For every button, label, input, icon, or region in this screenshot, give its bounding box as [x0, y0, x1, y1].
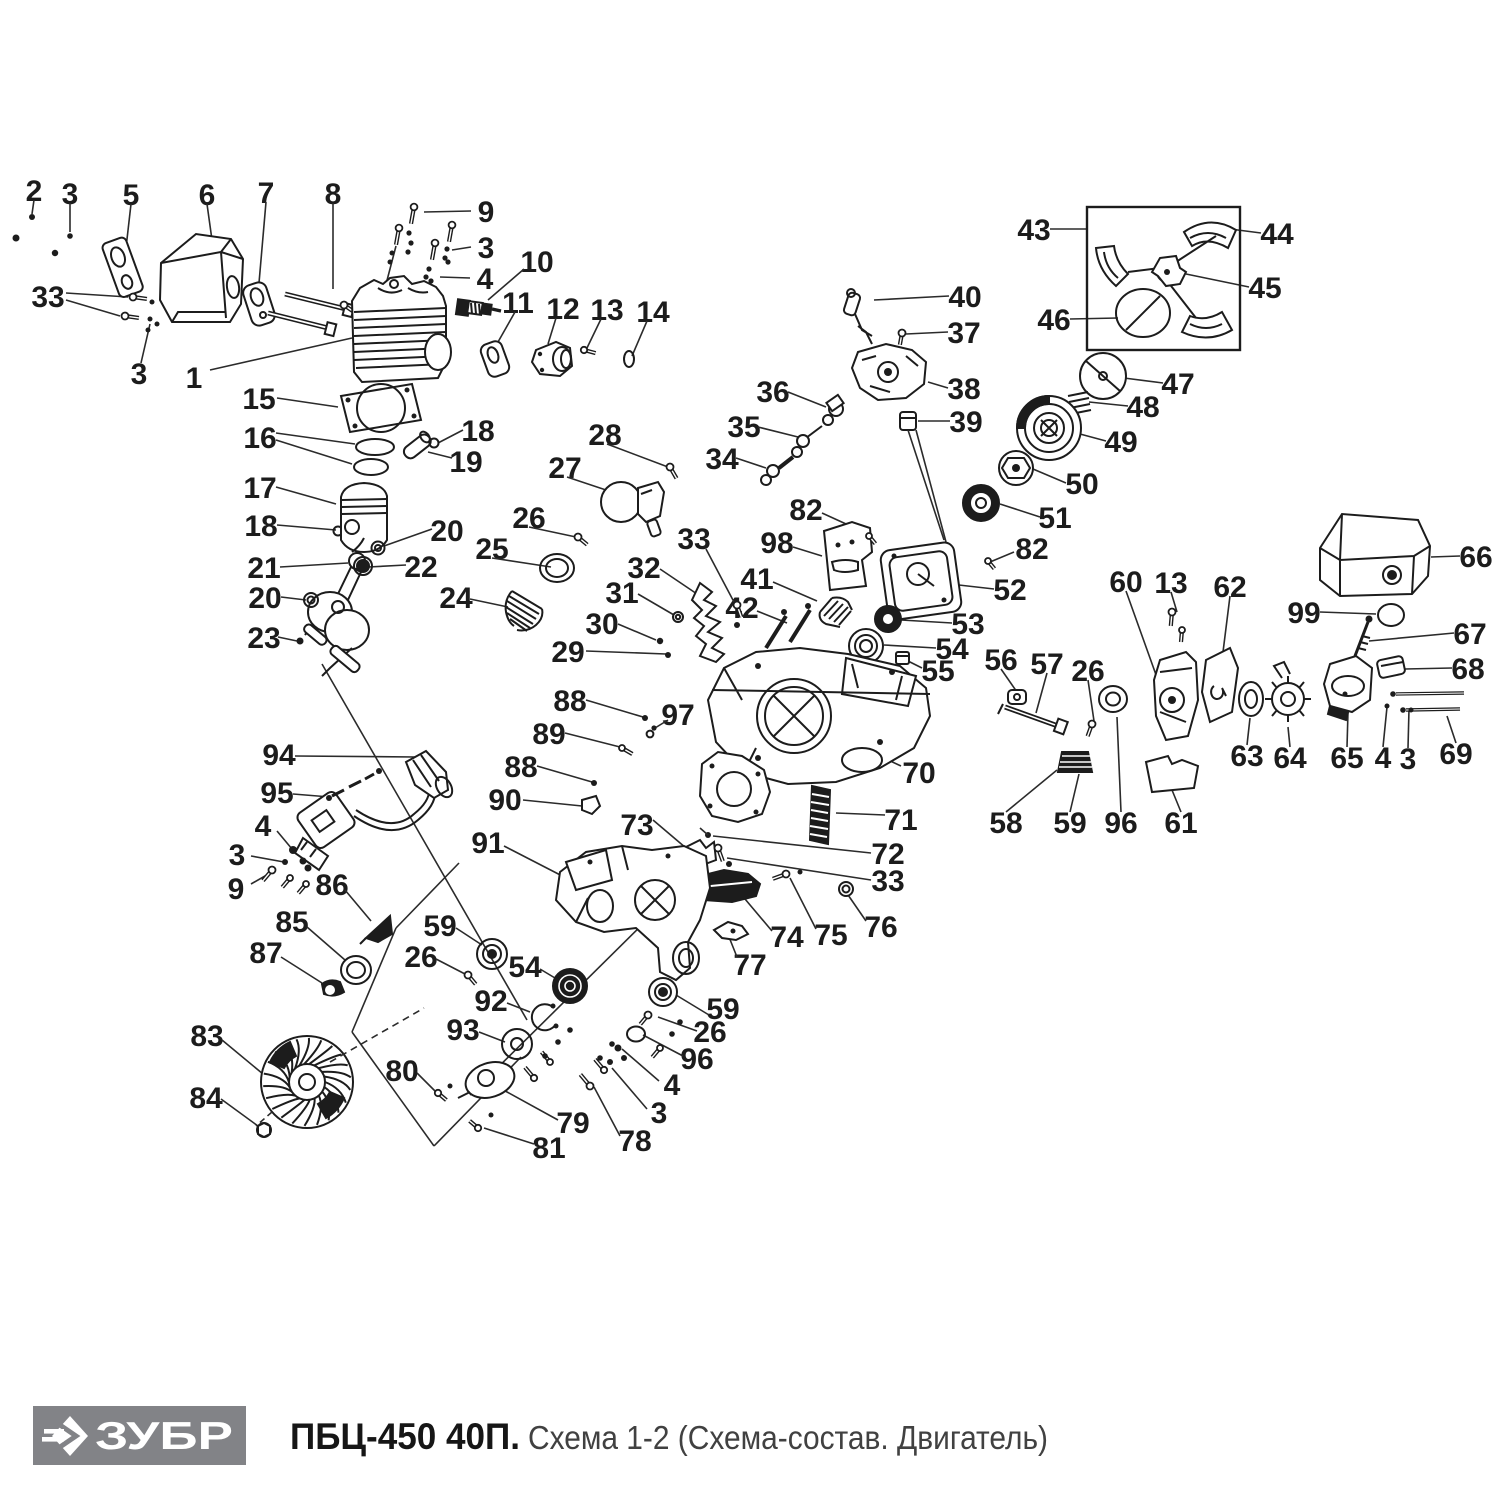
svg-text:67: 67: [1453, 618, 1486, 651]
svg-text:48: 48: [1126, 391, 1159, 424]
svg-text:73: 73: [620, 809, 653, 842]
svg-text:88: 88: [553, 685, 586, 718]
svg-text:43: 43: [1017, 214, 1050, 247]
svg-text:74: 74: [770, 921, 804, 954]
svg-text:23: 23: [247, 622, 280, 655]
svg-text:94: 94: [262, 739, 296, 772]
svg-text:37: 37: [947, 317, 980, 350]
svg-text:30: 30: [585, 608, 618, 641]
svg-text:17: 17: [243, 472, 276, 505]
svg-text:19: 19: [449, 446, 482, 479]
svg-text:Схема 1-2 (Схема-состав. Двига: Схема 1-2 (Схема-состав. Двигатель): [528, 1419, 1048, 1456]
svg-text:29: 29: [551, 636, 584, 669]
svg-text:4: 4: [477, 263, 494, 296]
svg-text:33: 33: [677, 523, 710, 556]
svg-text:10: 10: [520, 246, 553, 279]
svg-text:1: 1: [186, 362, 203, 395]
svg-text:77: 77: [733, 949, 766, 982]
svg-text:ЗУБР: ЗУБР: [95, 1415, 233, 1458]
svg-text:86: 86: [315, 869, 348, 902]
svg-text:14: 14: [636, 296, 670, 329]
svg-text:56: 56: [984, 644, 1017, 677]
svg-text:32: 32: [627, 552, 660, 585]
svg-text:99: 99: [1287, 597, 1320, 630]
svg-text:89: 89: [532, 718, 565, 751]
svg-text:83: 83: [190, 1020, 223, 1053]
svg-text:11: 11: [502, 287, 534, 320]
svg-text:33: 33: [871, 865, 904, 898]
svg-text:38: 38: [947, 373, 980, 406]
svg-text:20: 20: [248, 582, 281, 615]
svg-text:91: 91: [471, 827, 504, 860]
svg-text:18: 18: [461, 415, 494, 448]
svg-text:52: 52: [993, 574, 1026, 607]
svg-text:60: 60: [1109, 566, 1142, 599]
svg-text:26: 26: [693, 1016, 726, 1049]
svg-text:20: 20: [430, 515, 463, 548]
svg-text:59: 59: [423, 910, 456, 943]
svg-text:57: 57: [1030, 648, 1063, 681]
svg-text:55: 55: [921, 655, 954, 688]
svg-text:71: 71: [884, 804, 917, 837]
svg-text:13: 13: [590, 294, 623, 327]
svg-text:13: 13: [1154, 567, 1187, 600]
svg-text:75: 75: [814, 919, 847, 952]
svg-text:ПБЦ-450 40П.: ПБЦ-450 40П.: [290, 1416, 520, 1457]
svg-text:51: 51: [1038, 502, 1071, 535]
svg-text:44: 44: [1260, 218, 1294, 251]
svg-text:9: 9: [228, 873, 245, 906]
svg-text:82: 82: [789, 494, 822, 527]
svg-text:97: 97: [661, 699, 694, 732]
svg-text:15: 15: [242, 383, 275, 416]
svg-text:82: 82: [1015, 533, 1048, 566]
svg-text:34: 34: [705, 443, 739, 476]
svg-text:87: 87: [249, 937, 282, 970]
svg-text:25: 25: [475, 533, 508, 566]
svg-text:68: 68: [1451, 653, 1484, 686]
svg-text:36: 36: [756, 376, 789, 409]
svg-text:24: 24: [439, 582, 473, 615]
svg-text:18: 18: [244, 510, 277, 543]
svg-text:70: 70: [902, 757, 935, 790]
svg-text:21: 21: [247, 552, 280, 585]
svg-text:80: 80: [385, 1055, 418, 1088]
svg-text:49: 49: [1104, 426, 1137, 459]
svg-text:88: 88: [504, 751, 537, 784]
svg-text:22: 22: [404, 551, 437, 584]
svg-text:85: 85: [275, 906, 308, 939]
svg-text:3: 3: [478, 232, 495, 265]
svg-text:47: 47: [1161, 368, 1194, 401]
svg-text:39: 39: [949, 406, 982, 439]
svg-text:98: 98: [760, 527, 793, 560]
svg-text:3: 3: [229, 839, 246, 872]
svg-text:42: 42: [725, 592, 758, 625]
svg-text:84: 84: [189, 1082, 223, 1115]
svg-text:3: 3: [131, 358, 148, 391]
svg-text:4: 4: [255, 810, 272, 843]
svg-text:9: 9: [478, 196, 495, 229]
svg-text:90: 90: [488, 784, 521, 817]
svg-text:76: 76: [864, 911, 897, 944]
svg-text:66: 66: [1459, 541, 1492, 574]
svg-text:93: 93: [446, 1014, 479, 1047]
svg-text:33: 33: [31, 281, 64, 314]
svg-text:95: 95: [260, 777, 293, 810]
svg-text:54: 54: [508, 951, 542, 984]
svg-text:3: 3: [651, 1097, 668, 1130]
svg-text:16: 16: [243, 422, 276, 455]
svg-text:81: 81: [532, 1132, 565, 1165]
svg-text:50: 50: [1065, 468, 1098, 501]
svg-text:26: 26: [404, 941, 437, 974]
svg-text:35: 35: [727, 411, 760, 444]
svg-text:78: 78: [618, 1125, 651, 1158]
svg-text:40: 40: [948, 281, 981, 314]
svg-text:12: 12: [546, 293, 579, 326]
svg-text:46: 46: [1037, 304, 1070, 337]
svg-text:45: 45: [1248, 272, 1281, 305]
